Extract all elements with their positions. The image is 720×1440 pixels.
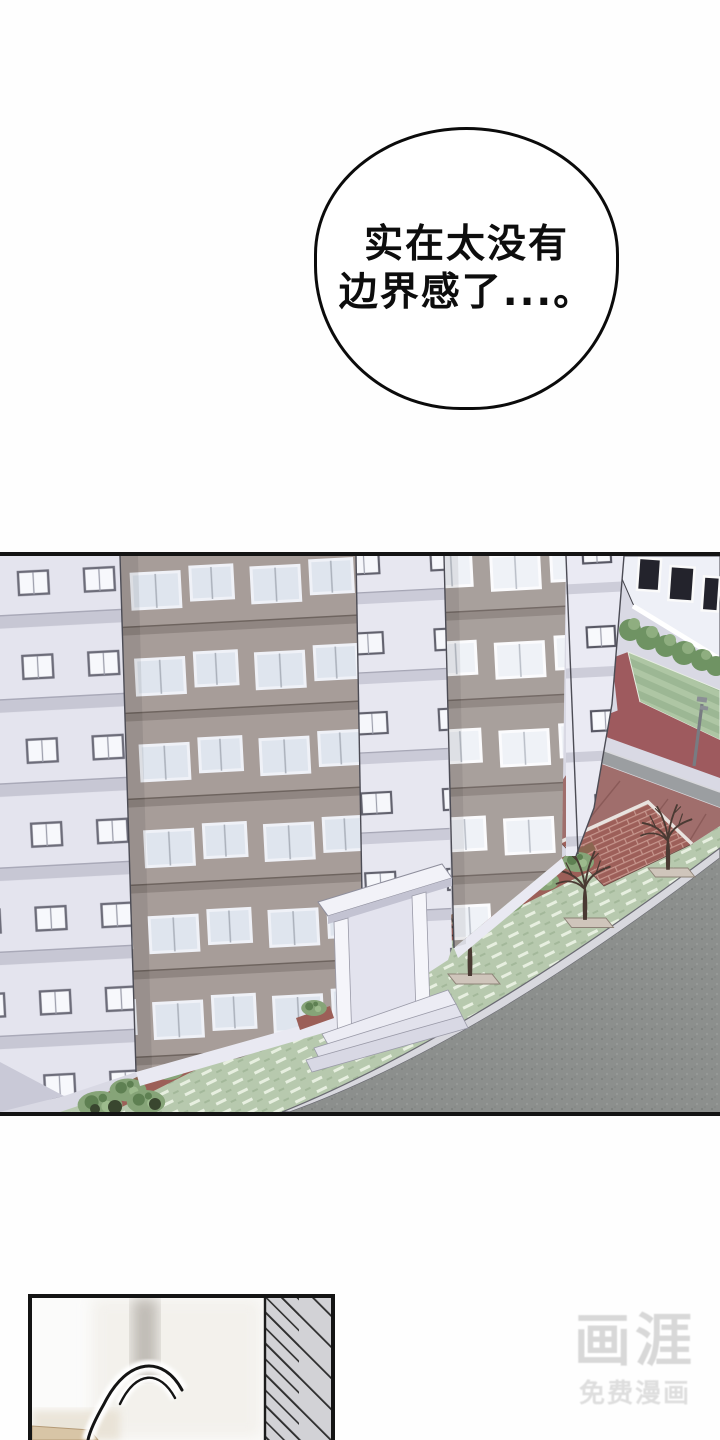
- interior-panel: [28, 1294, 335, 1440]
- watermark-subtitle: 免费漫画: [560, 1373, 710, 1410]
- hatched-wall: [265, 1298, 331, 1440]
- speech-bubble: 实在太没有 边界感了...。: [314, 127, 619, 410]
- speech-line-2: 边界感了...。: [339, 269, 594, 317]
- watermark-logo: 画涯: [560, 1310, 710, 1373]
- speech-line-1: 实在太没有: [339, 221, 594, 269]
- watermark: 画涯 免费漫画: [560, 1310, 710, 1410]
- speech-bubble-text: 实在太没有 边界感了...。: [339, 221, 594, 316]
- apartment-scene-panel: [0, 552, 720, 1116]
- facade-taupe-main: [120, 556, 364, 1072]
- facade-lavender-left: [0, 556, 136, 1112]
- interior-scene: [32, 1298, 331, 1440]
- apartment-scene: [0, 556, 720, 1112]
- comic-page: 实在太没有 边界感了...。: [0, 0, 720, 1440]
